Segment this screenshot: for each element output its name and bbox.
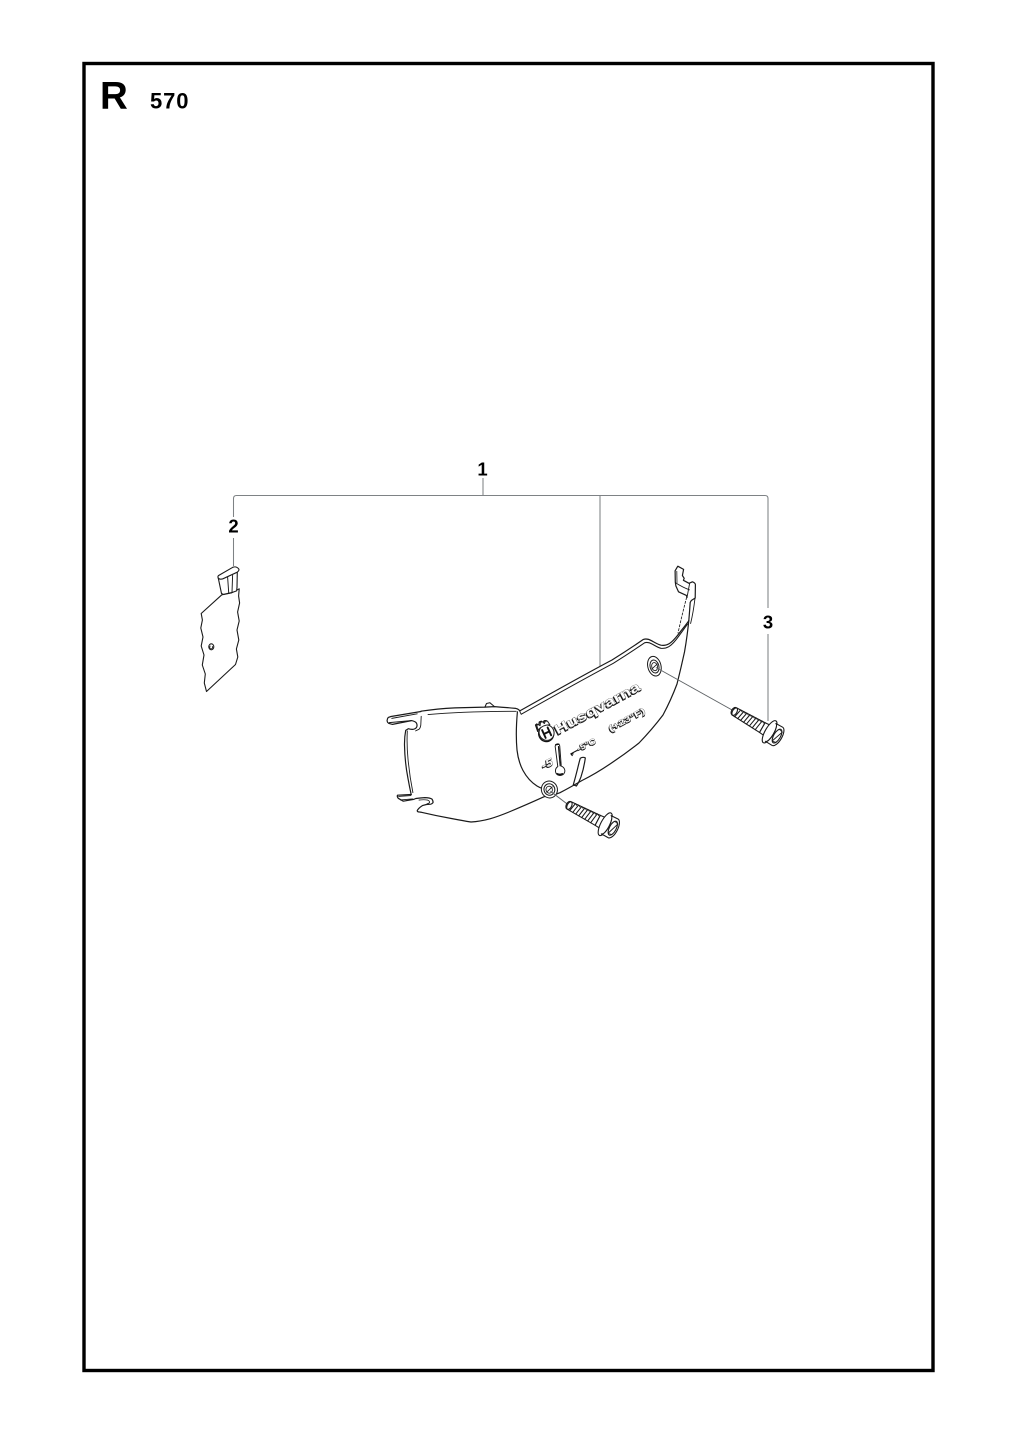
svg-text:R: R [100, 74, 128, 117]
svg-text:1: 1 [477, 459, 487, 480]
svg-text:570: 570 [150, 89, 189, 114]
svg-text:2: 2 [228, 516, 238, 537]
svg-text:3: 3 [763, 612, 773, 633]
